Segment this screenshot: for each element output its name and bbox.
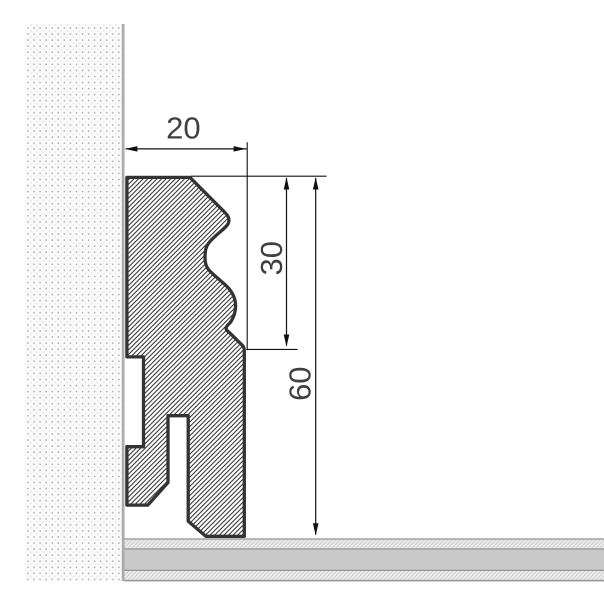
svg-text:60: 60 <box>283 366 318 400</box>
svg-text:20: 20 <box>166 111 200 146</box>
svg-text:30: 30 <box>254 241 289 275</box>
